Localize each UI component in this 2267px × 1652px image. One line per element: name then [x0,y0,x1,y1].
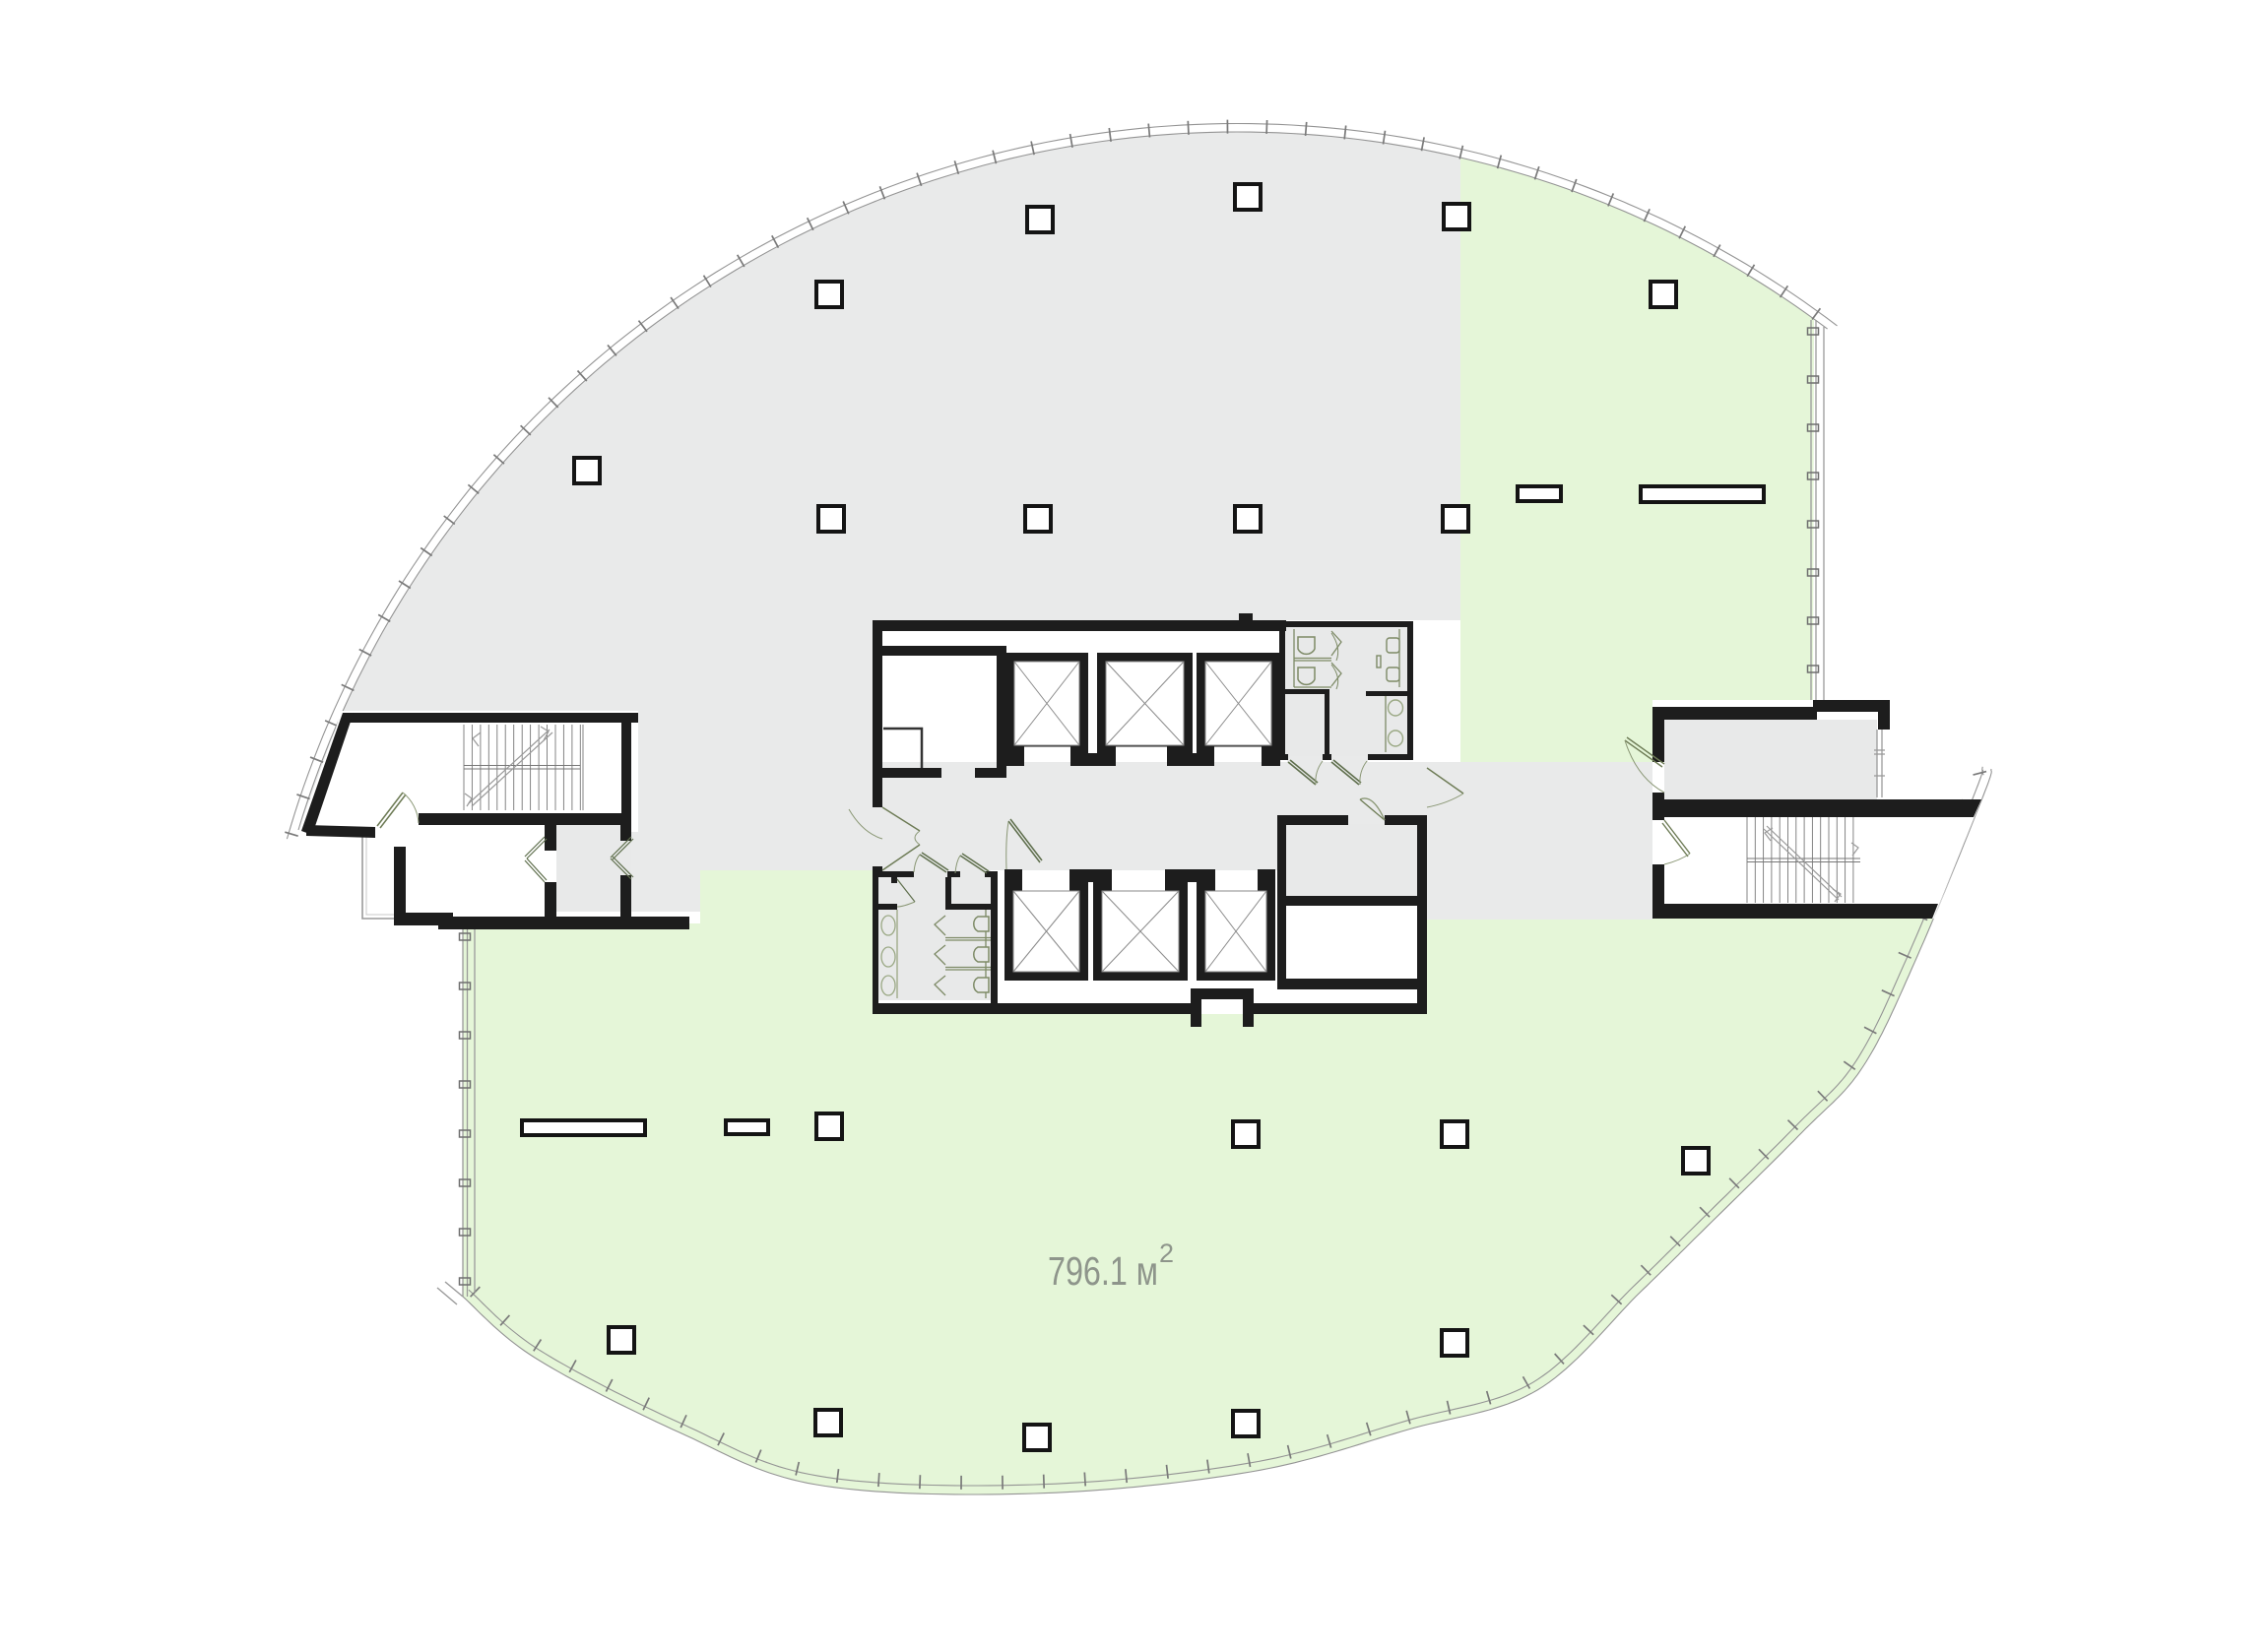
svg-text:796.1 м: 796.1 м [1048,1248,1158,1294]
svg-text:2: 2 [1159,1239,1174,1268]
